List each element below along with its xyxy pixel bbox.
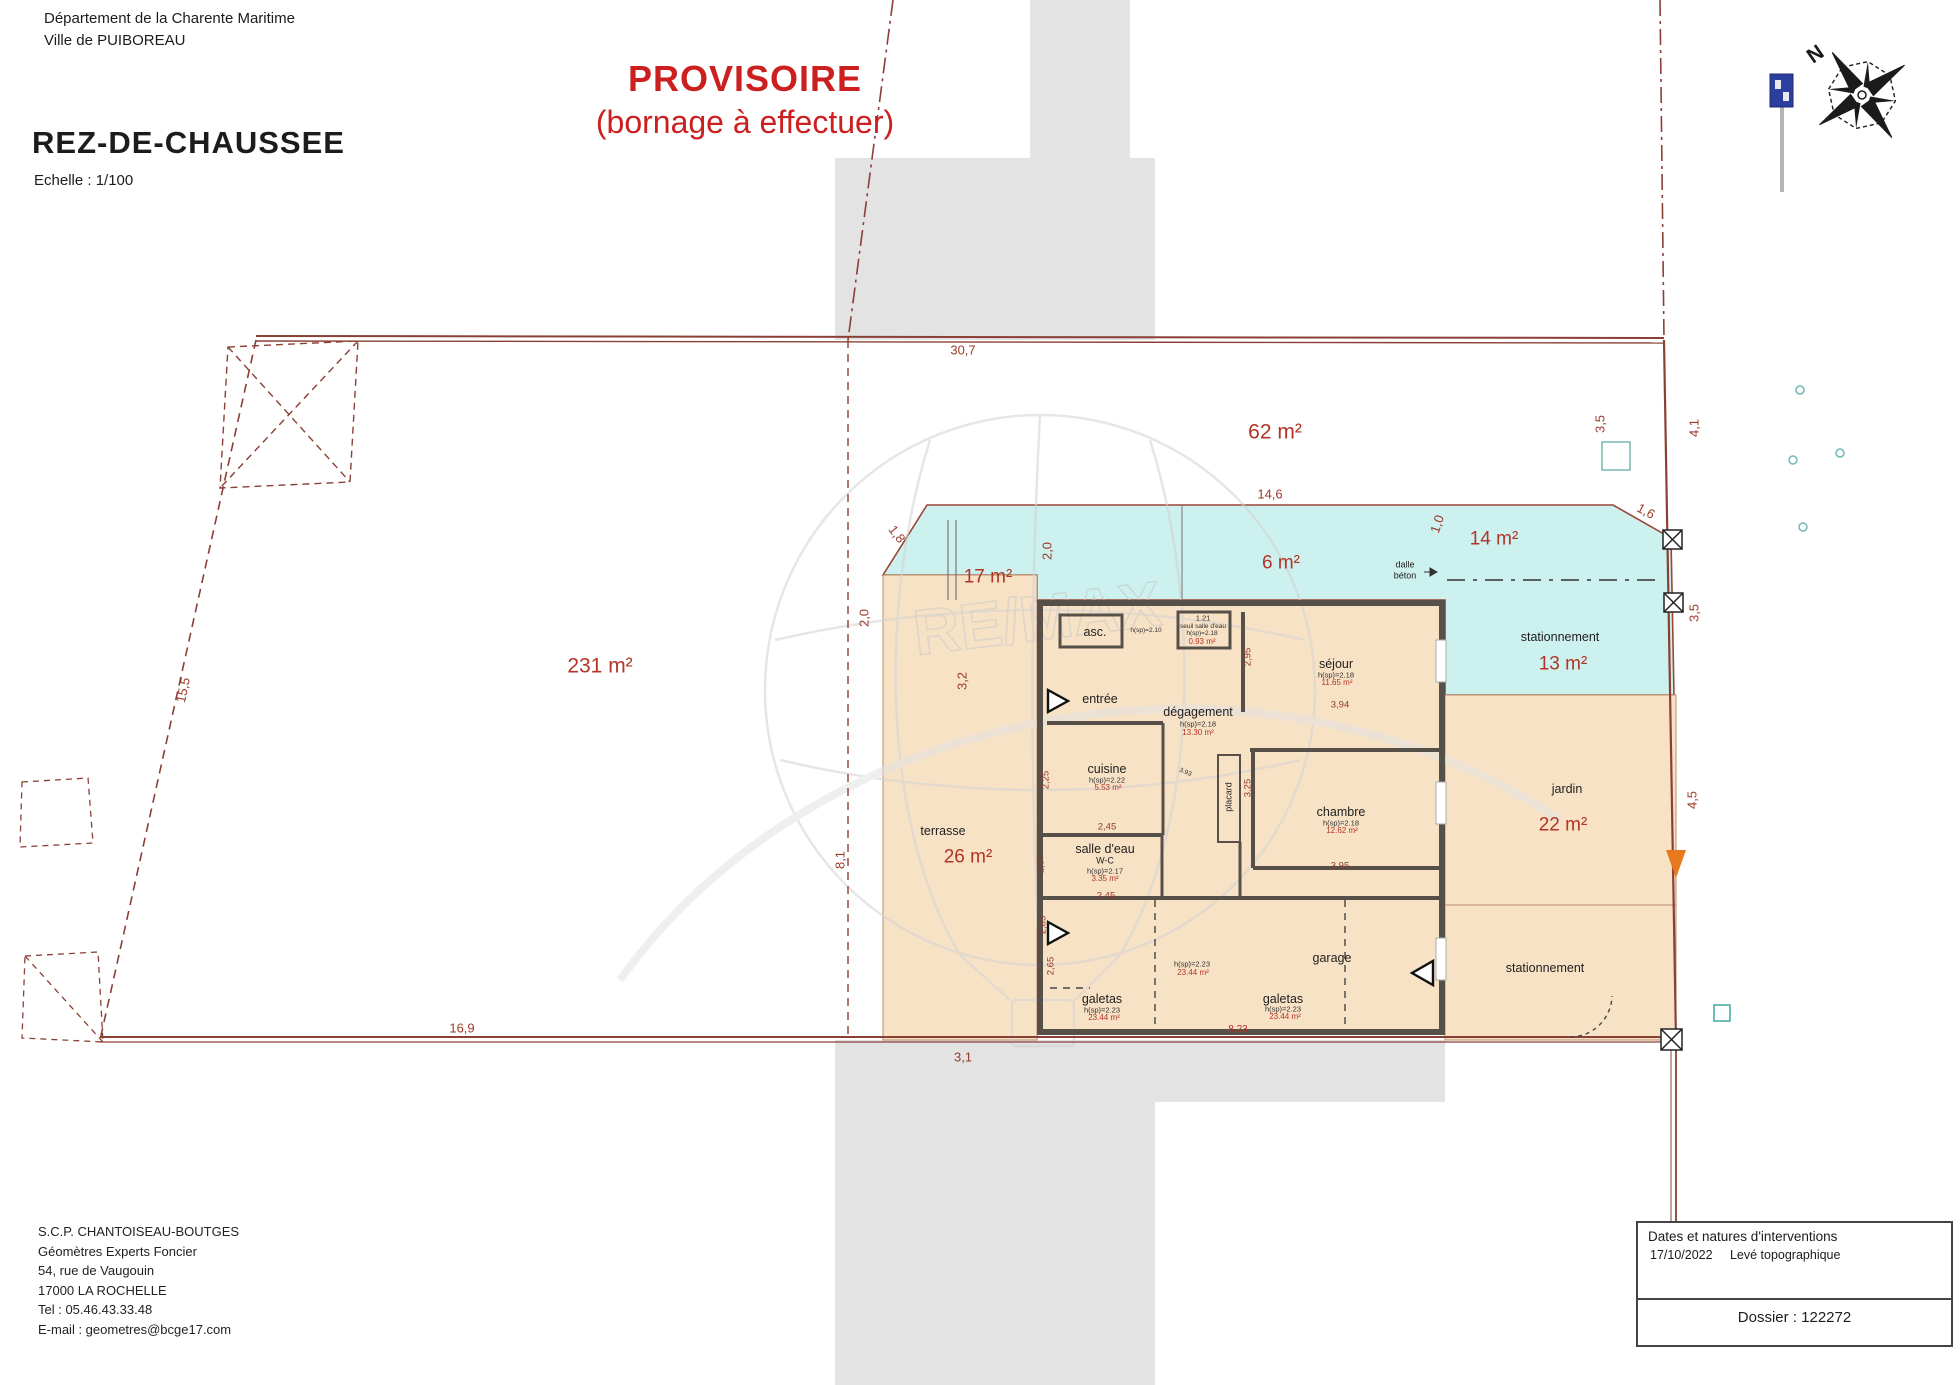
gray-strip-top-narrow — [1030, 0, 1130, 158]
plan-label: 26 m² — [944, 848, 993, 867]
plan-label: 4,1 — [1688, 419, 1701, 437]
plan-label: 13 m² — [1539, 655, 1588, 674]
compass-north-letter: N — [1803, 41, 1829, 69]
gray-strip-top-wide — [835, 158, 1155, 340]
plan-label: salle d'eau — [1075, 843, 1134, 856]
plan-label: 2,45 — [1098, 822, 1117, 832]
plan-label: 2,45 — [1097, 891, 1116, 901]
plan-label: séjour — [1319, 658, 1353, 671]
plan-label: 3,5 — [1688, 604, 1701, 622]
plan-label: 2,65 — [1046, 957, 1056, 976]
plan-label: placard — [1225, 782, 1234, 812]
plan-label: dégagement — [1163, 706, 1233, 719]
plan-drawing: RE/MAX — [0, 0, 1960, 1385]
surveyor-tel: Tel : 05.46.43.33.48 — [38, 1300, 239, 1320]
plan-label: 11.65 m² — [1322, 679, 1353, 687]
dossier-number: Dossier : 122272 — [1638, 1298, 1951, 1345]
plan-label: 1,37 — [1036, 855, 1046, 874]
document-header: Département de la Charente Maritime Vill… — [44, 8, 295, 52]
plan-label: entrée — [1082, 693, 1117, 706]
plan-label: cuisine — [1088, 763, 1127, 776]
plan-label: h(sp)=2.18 — [1180, 720, 1216, 728]
plan-label: 3,95 — [1331, 861, 1350, 871]
jardin-zone — [1445, 695, 1676, 905]
plan-label: 62 m² — [1248, 422, 1302, 443]
scale-note: Echelle : 1/100 — [34, 172, 133, 189]
title-block: Dates et natures d'interventions 17/10/2… — [1636, 1221, 1953, 1347]
survey-plan-page: RE/MAX — [0, 0, 1960, 1385]
plan-label: 22 m² — [1539, 816, 1588, 835]
header-city: Ville de PUIBOREAU — [44, 30, 295, 52]
plan-label: garage — [1313, 952, 1352, 965]
plan-label: terrasse — [920, 825, 965, 838]
surveyor-block: S.C.P. CHANTOISEAU-BOUTGES Géomètres Exp… — [38, 1222, 239, 1339]
plan-label: 8,23 — [1228, 1025, 1247, 1035]
surveyor-role: Géomètres Experts Foncier — [38, 1242, 239, 1262]
plan-label: 16,9 — [449, 1022, 474, 1035]
plan-label: 3,5 — [1594, 415, 1607, 433]
gray-strip-bottom-right — [1155, 1040, 1445, 1102]
plan-label: 8,1 — [834, 851, 847, 869]
gray-strip-bottom — [835, 1040, 1155, 1385]
plan-label: 30,7 — [950, 344, 975, 357]
plan-label: stationnement — [1506, 962, 1585, 975]
plan-label: 5.53 m² — [1094, 784, 1121, 792]
provisional-notice: PROVISOIRE (bornage à effectuer) — [480, 58, 1010, 141]
plan-label: 23.44 m² — [1269, 1013, 1301, 1021]
plan-label: 6 m² — [1262, 554, 1300, 573]
plan-label: 3,94 — [1331, 700, 1350, 710]
plan-label: chambre — [1317, 806, 1366, 819]
plan-label: 2,25 — [1041, 771, 1051, 790]
plan-label: dalle — [1395, 561, 1414, 570]
title-block-heading: Dates et natures d'interventions — [1638, 1223, 1951, 1244]
plan-label: 12.62 m² — [1326, 827, 1358, 835]
intervention-date: 17/10/2022 — [1650, 1248, 1713, 1262]
plan-label: 2,85 — [1038, 916, 1048, 935]
plan-label: 2,95 — [1243, 648, 1253, 667]
plan-label: 4,5 — [1686, 791, 1699, 809]
blue-sign-icon — [1770, 74, 1793, 192]
plan-label: 14 m² — [1470, 530, 1519, 549]
plan-label: 3,2 — [956, 672, 969, 690]
plan-label: 23.44 m² — [1177, 969, 1209, 977]
provisional-subtitle: (bornage à effectuer) — [480, 104, 1010, 141]
plan-label: 2,0 — [1041, 542, 1054, 560]
plan-label: 0.93 m² — [1188, 638, 1215, 646]
plan-label: 14,6 — [1257, 488, 1282, 501]
plan-label: 17 m² — [964, 568, 1013, 587]
header-department: Département de la Charente Maritime — [44, 8, 295, 30]
plan-label: 3,1 — [954, 1051, 972, 1064]
plan-label: 3.35 m² — [1091, 875, 1118, 883]
plan-label: 23.44 m² — [1088, 1014, 1120, 1022]
plan-label: 1.21 — [1196, 614, 1211, 622]
plan-label: h(sp)=2.23 — [1174, 960, 1210, 968]
plan-label: W-C — [1096, 857, 1114, 866]
plan-label: asc. — [1084, 626, 1107, 639]
surveyor-city: 17000 LA ROCHELLE — [38, 1281, 239, 1301]
provisional-title: PROVISOIRE — [480, 58, 1010, 100]
plan-label: béton — [1394, 572, 1417, 581]
surveyor-email: E-mail : geometres@bcge17.com — [38, 1320, 239, 1340]
plan-label: jardin — [1552, 783, 1583, 796]
surveyor-address: 54, rue de Vaugouin — [38, 1261, 239, 1281]
plan-label: 231 m² — [567, 656, 632, 677]
intervention-nature: Levé topographique — [1730, 1248, 1841, 1262]
page-title: REZ-DE-CHAUSSEE — [32, 125, 345, 161]
plan-label: h(sp)=2.10 — [1130, 628, 1161, 635]
plan-label: 2,0 — [858, 609, 871, 627]
plan-label: 13.30 m² — [1182, 729, 1214, 737]
plan-label: 3,25 — [1243, 779, 1253, 798]
title-block-intervention: 17/10/2022 Levé topographique — [1638, 1244, 1951, 1262]
surveyor-name: S.C.P. CHANTOISEAU-BOUTGES — [38, 1222, 239, 1242]
plan-label: stationnement — [1521, 631, 1600, 644]
plan-label: galetas — [1082, 993, 1122, 1006]
